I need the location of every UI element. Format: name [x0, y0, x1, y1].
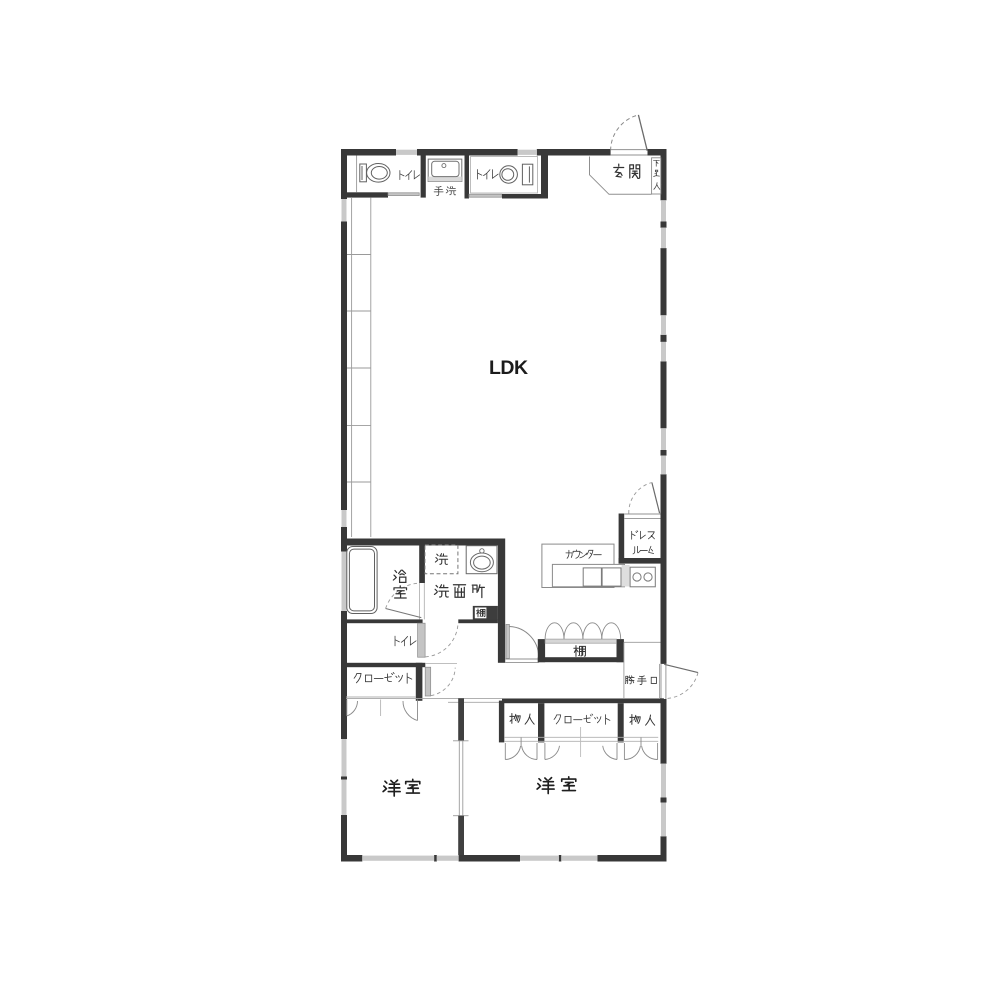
svg-text:LDK: LDK — [489, 357, 528, 379]
